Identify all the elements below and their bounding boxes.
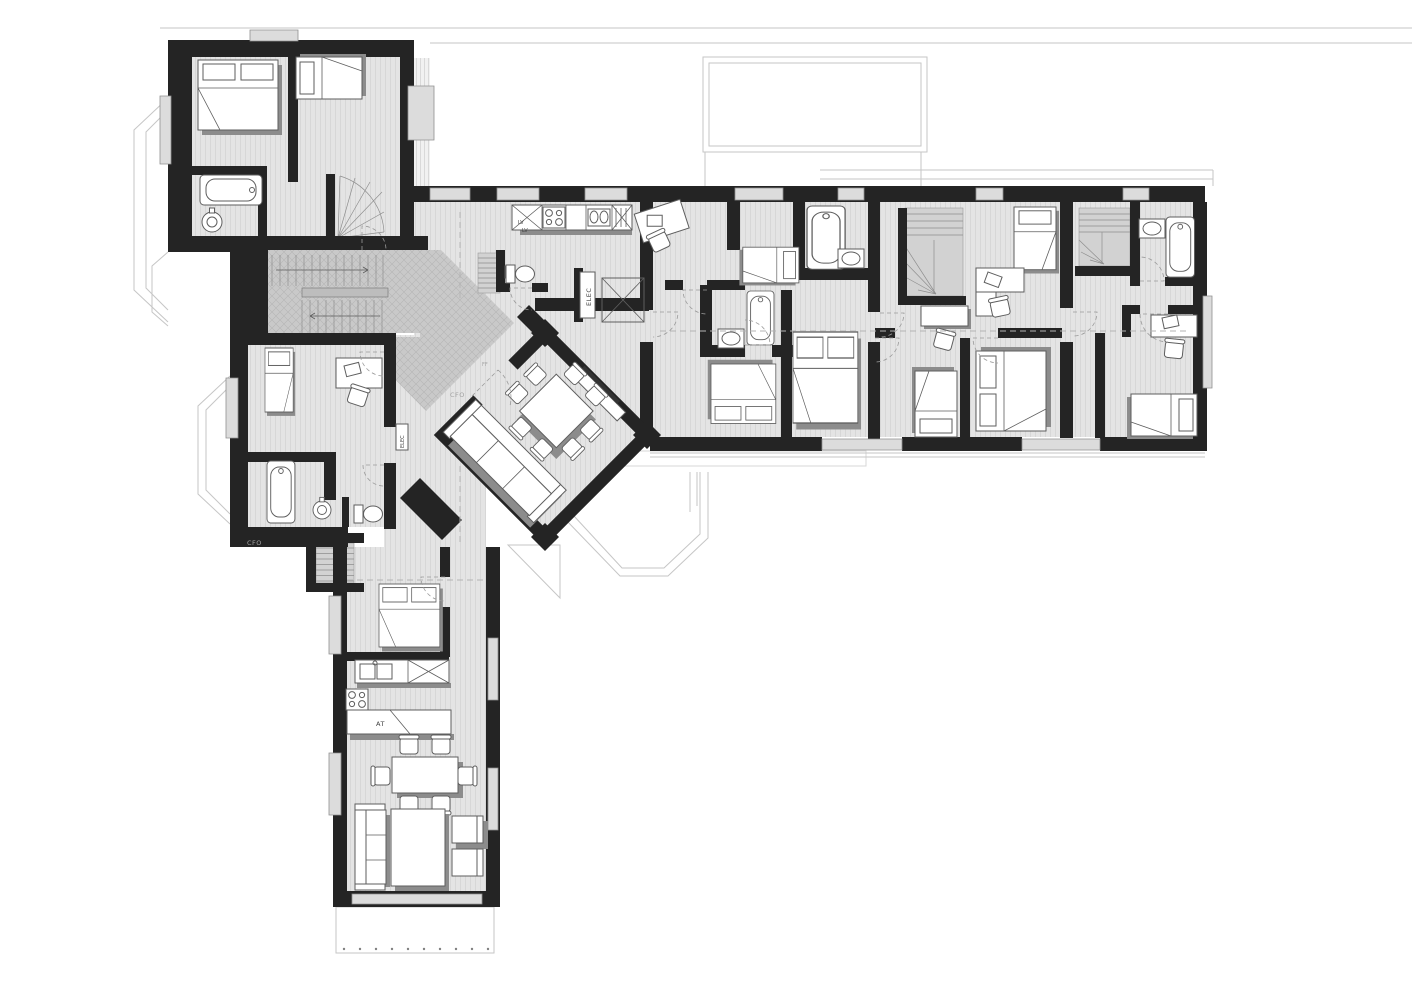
counter-shadow: [357, 683, 451, 688]
stove-icon: [346, 689, 368, 710]
kitchen-counter: [512, 205, 632, 230]
double-bed: [708, 360, 776, 424]
washbasin: [1139, 219, 1165, 238]
label-dishwasher: LV: [518, 220, 524, 226]
dresser: [921, 306, 968, 326]
bathtub: [747, 291, 774, 345]
chair: [399, 735, 419, 754]
double-bed: [198, 60, 282, 135]
rooftop-terrace: [703, 57, 927, 152]
terrace-dots: [343, 948, 489, 950]
chair: [1163, 338, 1185, 359]
staircase-winder-unit3: [905, 208, 963, 296]
single-bed: [296, 54, 366, 99]
sofa-back: [355, 810, 366, 884]
armchair-back: [477, 849, 483, 876]
kitchen-island: [347, 710, 451, 734]
armchair-back: [477, 816, 483, 843]
single-bed: [1127, 394, 1197, 439]
roof-plane-southeast: [508, 545, 560, 598]
double-bed: [379, 584, 443, 652]
dining-table: [392, 757, 458, 793]
double-bed: [793, 332, 861, 430]
floor-plan-drawing: ELEC ELEC LV LV AT CFO CFO FF: [0, 0, 1416, 1000]
label-counter: AT: [376, 720, 385, 728]
single-bed: [1014, 207, 1059, 274]
label-elec-closet: ELEC: [585, 288, 593, 306]
stove-icon: [543, 207, 565, 228]
kitchen-main: [512, 205, 632, 235]
eaves-right-wing: [820, 170, 1213, 186]
toilet: [506, 265, 535, 283]
washbasin: [838, 249, 864, 268]
single-bed: [912, 367, 957, 437]
bathtub: [267, 461, 295, 523]
label-cfo-stairhall: CFO: [247, 539, 262, 547]
label-cfo-hall: CFO: [450, 391, 465, 399]
double-bed: [976, 347, 1051, 431]
terrace-connectors: [705, 152, 921, 186]
label-ff: FF: [482, 362, 488, 368]
chair: [458, 766, 477, 786]
floor-plan-page: ELEC ELEC LV LV AT CFO CFO FF: [0, 0, 1416, 1000]
coffee-table: [391, 809, 445, 886]
desk: [976, 268, 1024, 292]
label-washer: LV: [522, 228, 528, 234]
bathtub: [1166, 217, 1195, 277]
single-bed: [265, 348, 295, 416]
chair: [371, 766, 390, 786]
toilet: [354, 505, 383, 523]
label-elec-shaft: ELEC: [400, 435, 406, 448]
rooftop-terrace-inner: [709, 63, 921, 146]
staircase-winder-unit4: [1079, 208, 1130, 266]
sofa-seat: [366, 810, 386, 884]
sill-lines-south: [650, 453, 1205, 457]
terrace-south: [336, 907, 494, 953]
desk: [1151, 315, 1197, 337]
washbasin: [718, 329, 744, 348]
chair: [431, 735, 451, 754]
single-bed: [739, 247, 799, 285]
bathtub: [200, 175, 262, 205]
kitchen-counter: [355, 660, 449, 683]
